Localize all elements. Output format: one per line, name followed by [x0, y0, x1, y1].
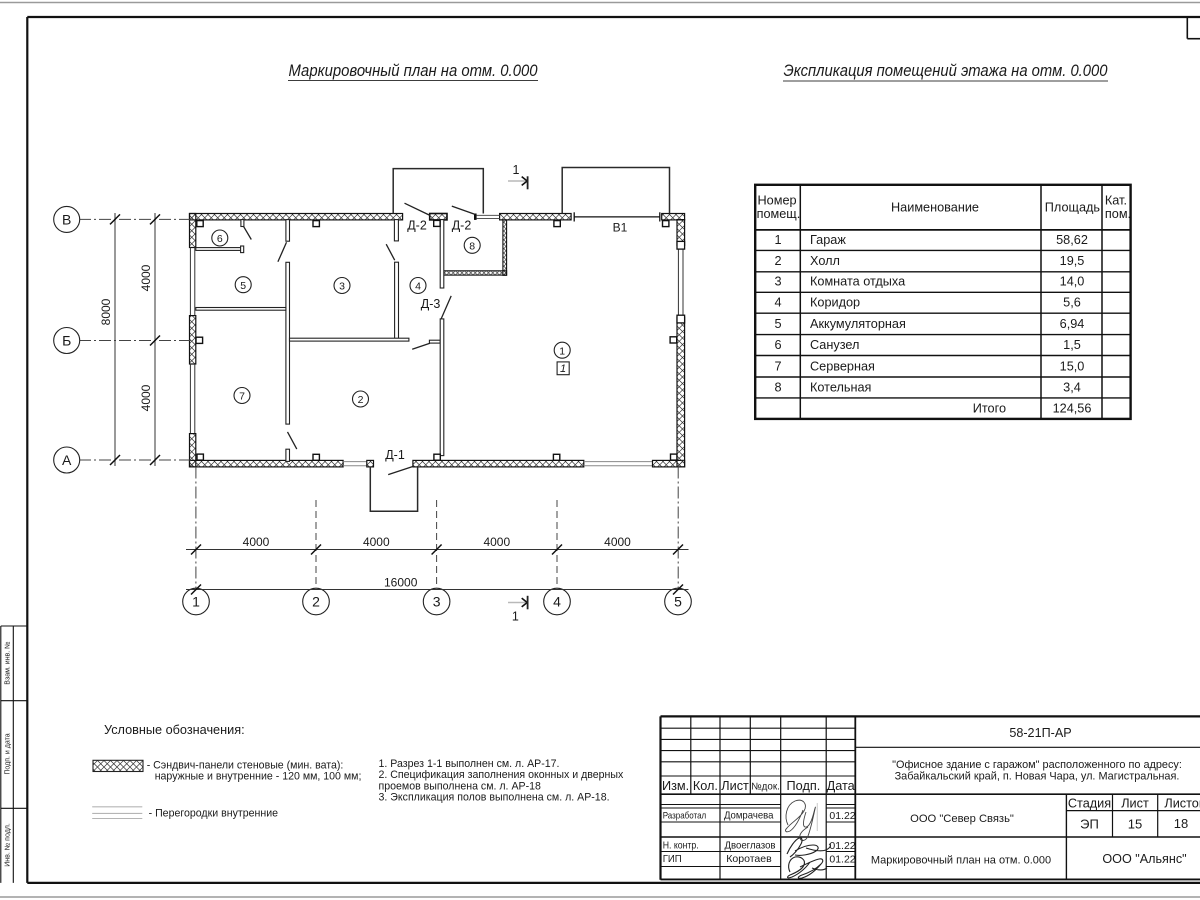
svg-text:Б: Б — [62, 333, 71, 349]
svg-text:58,62: 58,62 — [1056, 233, 1088, 247]
svg-text:Маркировочный план на отм. 0.0: Маркировочный план на отм. 0.000 — [289, 62, 539, 80]
svg-text:3: 3 — [774, 275, 781, 289]
svg-text:Холл: Холл — [810, 254, 840, 268]
svg-text:5: 5 — [674, 594, 682, 610]
svg-text:Номер: Номер — [758, 194, 797, 208]
svg-text:19,5: 19,5 — [1060, 254, 1085, 268]
svg-text:1: 1 — [560, 363, 566, 375]
svg-text:01.22: 01.22 — [829, 853, 855, 865]
svg-text:2: 2 — [358, 394, 364, 406]
svg-text:помещ.: помещ. — [757, 207, 801, 221]
svg-text:Взам. инв. №: Взам. инв. № — [5, 641, 12, 684]
svg-text:2: 2 — [312, 594, 320, 610]
svg-text:Листов: Листов — [1164, 797, 1200, 811]
svg-text:Дата: Дата — [827, 779, 856, 793]
svg-text:Санузел: Санузел — [810, 338, 859, 352]
svg-text:ООО "Альянс": ООО "Альянс" — [1102, 852, 1186, 866]
svg-text:1,5: 1,5 — [1063, 338, 1081, 352]
svg-text:6: 6 — [217, 233, 223, 245]
svg-text:01.22: 01.22 — [829, 840, 855, 852]
svg-text:18: 18 — [1174, 816, 1188, 831]
svg-text:Подп.: Подп. — [787, 779, 821, 793]
svg-text:Коридор: Коридор — [810, 296, 860, 310]
svg-text:- Перегородки внутренние: - Перегородки внутренние — [149, 808, 279, 820]
svg-text:ГИП: ГИП — [663, 854, 682, 865]
svg-text:Гараж: Гараж — [810, 233, 846, 247]
svg-text:ООО "Север Связь": ООО "Север Связь" — [910, 813, 1014, 825]
svg-text:Н. контр.: Н. контр. — [663, 841, 699, 852]
svg-text:15,0: 15,0 — [1060, 359, 1085, 373]
svg-text:пом.: пом. — [1105, 207, 1131, 221]
svg-text:Д-2: Д-2 — [452, 218, 472, 232]
svg-text:В1: В1 — [613, 221, 628, 235]
svg-text:Площадь: Площадь — [1045, 200, 1101, 214]
svg-text:5: 5 — [774, 317, 781, 331]
svg-text:5: 5 — [240, 280, 246, 292]
svg-text:4000: 4000 — [139, 384, 153, 411]
svg-text:Подп. и дата: Подп. и дата — [5, 733, 12, 774]
svg-text:16000: 16000 — [384, 576, 418, 590]
svg-text:Двоеглазов: Двоеглазов — [725, 840, 776, 852]
svg-text:5,6: 5,6 — [1063, 296, 1081, 310]
svg-text:Экспликация помещений этажа на: Экспликация помещений этажа на отм. 0.00… — [784, 62, 1109, 80]
svg-text:проемов выполнена см. л. АР-18: проемов выполнена см. л. АР-18 — [379, 780, 541, 792]
svg-text:1: 1 — [512, 610, 519, 624]
svg-text:Инв. № подл.: Инв. № подл. — [5, 823, 12, 867]
svg-text:В: В — [62, 211, 71, 227]
svg-text:3,4: 3,4 — [1063, 380, 1081, 394]
svg-text:Лист: Лист — [721, 779, 749, 793]
svg-text:3: 3 — [433, 594, 441, 610]
svg-text:4000: 4000 — [363, 535, 390, 549]
svg-text:8000: 8000 — [99, 298, 113, 325]
svg-text:4000: 4000 — [243, 535, 270, 549]
svg-text:4000: 4000 — [604, 535, 631, 549]
svg-text:4: 4 — [415, 281, 421, 293]
svg-text:4000: 4000 — [139, 264, 153, 291]
svg-text:6,94: 6,94 — [1060, 317, 1085, 331]
svg-text:Серверная: Серверная — [810, 359, 875, 373]
svg-text:7: 7 — [774, 359, 781, 373]
svg-text:2: 2 — [774, 254, 781, 268]
svg-text:Аккумуляторная: Аккумуляторная — [810, 317, 906, 331]
svg-text:Итого: Итого — [973, 401, 1006, 415]
svg-text:1: 1 — [192, 594, 200, 610]
svg-text:1: 1 — [513, 163, 520, 177]
svg-text:4: 4 — [553, 594, 561, 610]
svg-text:№док.: №док. — [751, 782, 780, 793]
svg-text:01.22: 01.22 — [829, 810, 855, 822]
svg-text:2. Спецификация заполнения око: 2. Спецификация заполнения оконных и две… — [379, 769, 625, 781]
svg-text:6: 6 — [774, 338, 781, 352]
svg-text:Комната отдыха: Комната отдыха — [810, 275, 906, 289]
svg-text:Стадия: Стадия — [1068, 797, 1111, 811]
svg-text:4000: 4000 — [483, 535, 510, 549]
svg-text:4: 4 — [774, 296, 781, 310]
svg-text:Условные обозначения:: Условные обозначения: — [104, 723, 245, 737]
svg-text:ЭП: ЭП — [1080, 817, 1099, 832]
svg-text:Д-2: Д-2 — [407, 218, 427, 232]
svg-text:Домрачева: Домрачева — [724, 809, 774, 821]
svg-text:Коротаев: Коротаев — [726, 853, 772, 865]
svg-text:8: 8 — [774, 380, 781, 394]
svg-text:Забайкальский край, п. Новая Ч: Забайкальский край, п. Новая Чара, ул. М… — [895, 770, 1180, 782]
svg-text:15: 15 — [1128, 817, 1142, 832]
svg-text:- Сэндвич-панели стеновые (мин: - Сэндвич-панели стеновые (мин. вата): — [147, 760, 344, 772]
svg-text:1: 1 — [559, 345, 565, 357]
svg-text:Лист: Лист — [1121, 797, 1149, 811]
svg-text:58-21П-АР: 58-21П-АР — [1009, 726, 1071, 740]
svg-text:наружные и внутренние - 120 мм: наружные и внутренние - 120 мм, 100 мм; — [155, 771, 362, 783]
svg-text:Изм.: Изм. — [662, 779, 689, 793]
svg-text:3: 3 — [339, 281, 345, 293]
svg-text:Д-3: Д-3 — [421, 297, 441, 311]
svg-text:"Офисное здание с гаражом" рас: "Офисное здание с гаражом" расположенног… — [892, 759, 1182, 771]
svg-text:14,0: 14,0 — [1060, 275, 1085, 289]
svg-text:Наименование: Наименование — [891, 200, 979, 214]
svg-text:7: 7 — [239, 391, 245, 403]
svg-text:Кол.: Кол. — [693, 779, 718, 793]
svg-text:Маркировочный план на отм. 0.0: Маркировочный план на отм. 0.000 — [871, 855, 1051, 867]
svg-text:Разработал: Разработал — [663, 810, 707, 821]
svg-text:1: 1 — [774, 233, 781, 247]
svg-text:3. Экспликация полов выполнена: 3. Экспликация полов выполнена см. л. АР… — [379, 792, 610, 804]
svg-text:А: А — [62, 452, 72, 468]
svg-text:124,56: 124,56 — [1053, 401, 1092, 415]
svg-text:8: 8 — [469, 240, 475, 252]
svg-text:Кат.: Кат. — [1105, 194, 1127, 208]
svg-text:Д-1: Д-1 — [385, 448, 405, 462]
svg-text:Котельная: Котельная — [810, 380, 871, 394]
